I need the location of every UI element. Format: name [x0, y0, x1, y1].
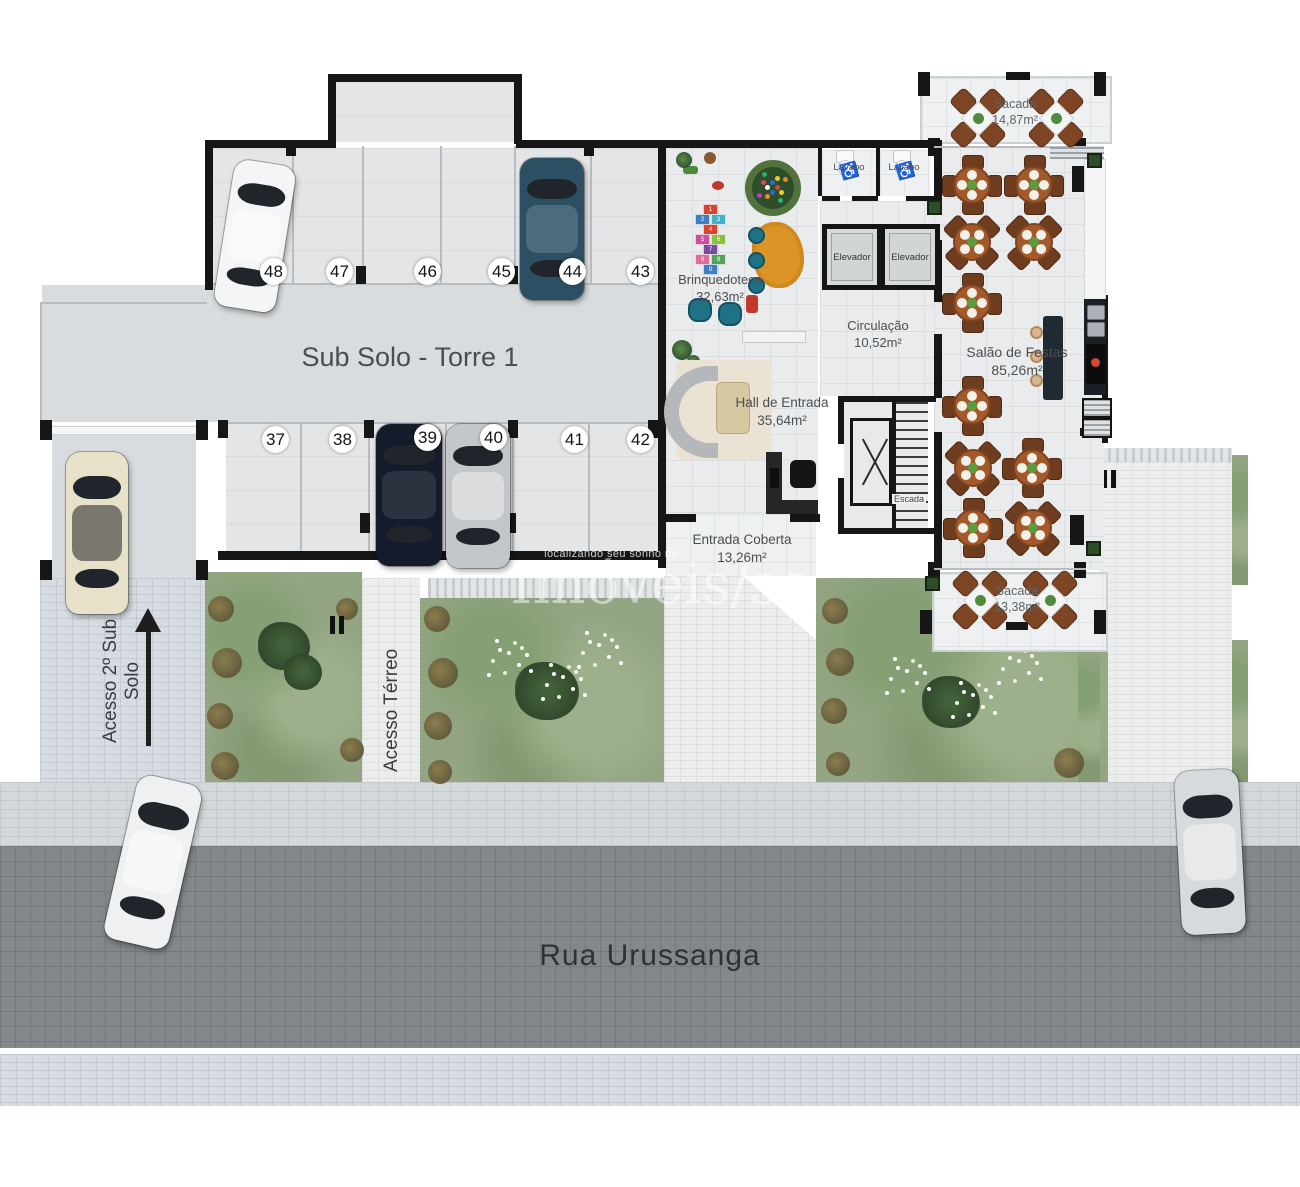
- ball: [770, 180, 775, 185]
- green-strip-3: [1232, 455, 1248, 585]
- room-label-circulacao: Circulação 10,52m²: [830, 318, 926, 352]
- elevator-1: Elevador: [822, 224, 882, 290]
- ball: [775, 176, 780, 181]
- parking-number: 42: [627, 426, 654, 453]
- pillar: [360, 513, 370, 533]
- stair-shaft: [850, 418, 892, 506]
- plate: [978, 523, 988, 533]
- pillar: [364, 420, 374, 438]
- pouf: [748, 227, 765, 244]
- ramp-gate-beam: [50, 426, 200, 435]
- car: [1174, 768, 1246, 935]
- watermark-brand: Imóveis/sc: [500, 552, 820, 617]
- flower-cluster: [588, 640, 592, 644]
- flower-cluster: [1008, 656, 1012, 660]
- wall: [514, 74, 522, 144]
- parking-number: 39: [414, 424, 441, 451]
- ramp-arrow-shaft: [146, 630, 151, 746]
- parking-number-text: 41: [565, 430, 584, 450]
- spot-divider: [514, 146, 516, 283]
- windshield: [73, 476, 121, 499]
- green-strip-4: [1232, 640, 1248, 782]
- ball: [770, 190, 775, 195]
- parking-number-text: 46: [418, 262, 437, 282]
- shrub: [1054, 748, 1084, 778]
- parking-number-text: 48: [264, 262, 283, 282]
- table-top: [953, 166, 991, 204]
- centerpiece: [968, 523, 978, 533]
- shrub: [207, 703, 233, 729]
- planter-box: [1086, 541, 1101, 556]
- parking-number: 48: [260, 258, 287, 285]
- shrub: [821, 698, 847, 724]
- shrub: [212, 648, 242, 678]
- plate: [967, 288, 977, 298]
- parking-number-text: 37: [266, 430, 285, 450]
- room-name: Sacada: [962, 96, 1068, 112]
- elevator-2: Elevador: [880, 224, 940, 290]
- parking-number-text: 43: [631, 262, 650, 282]
- grill-unit: [1082, 418, 1112, 438]
- parking-number: 43: [627, 258, 654, 285]
- stair-treads: [896, 402, 928, 526]
- wall: [658, 140, 666, 568]
- table-top: [1013, 449, 1051, 487]
- wall: [852, 196, 878, 201]
- shrub: [211, 752, 239, 780]
- sideboard: [742, 331, 806, 343]
- room-area: 35,64m²: [722, 412, 842, 430]
- shrub: [428, 658, 458, 688]
- room-label-escada: Escada: [886, 494, 932, 506]
- room-label-salao: Salão de Festas 85,26m²: [952, 343, 1082, 379]
- table-top: [954, 509, 992, 547]
- flower-cluster: [896, 666, 900, 670]
- pillar: [1072, 166, 1084, 192]
- sink: [1087, 322, 1105, 337]
- driveway-right-threshold: [1100, 448, 1232, 462]
- planter-box: [1087, 153, 1102, 168]
- spot-divider: [590, 146, 592, 283]
- rear-window: [118, 893, 168, 923]
- pillar: [356, 266, 366, 284]
- car-roof: [120, 828, 186, 896]
- room-name: Sacada: [964, 583, 1070, 599]
- wall: [205, 140, 213, 290]
- garden-gate-marker: [330, 616, 344, 634]
- spot-divider: [588, 424, 590, 551]
- watermark-brand-text: Imóveis/sc: [510, 552, 809, 617]
- floor-plan: Elevador Elevador ♿ ♿ 1234567890: [0, 0, 1300, 1187]
- pillar: [1094, 610, 1106, 634]
- wall: [892, 400, 896, 528]
- room-label-sacada-norte: Sacada 14,87m²: [962, 96, 1068, 129]
- parking-number: 46: [414, 258, 441, 285]
- room-area: 14,87m²: [962, 112, 1068, 128]
- rear-window: [386, 526, 432, 543]
- garage-bump-floor: [336, 82, 514, 142]
- room-name: Hall de Entrada: [722, 394, 842, 412]
- car-roof: [226, 207, 284, 265]
- parking-number-text: 42: [631, 430, 650, 450]
- plate: [967, 411, 977, 421]
- spot-divider: [300, 424, 302, 551]
- windshield: [1182, 793, 1233, 819]
- plate: [957, 180, 967, 190]
- rear-window: [1190, 887, 1236, 909]
- ramp-arrow-head: [135, 608, 161, 632]
- wall: [660, 514, 696, 522]
- parking-number-text: 47: [330, 262, 349, 282]
- centerpiece: [967, 298, 977, 308]
- plate: [1039, 180, 1049, 190]
- plate: [968, 533, 978, 543]
- plate: [977, 180, 987, 190]
- elevator-label: Elevador: [891, 252, 929, 263]
- parking-number-text: 40: [484, 428, 503, 448]
- room-area: 32,63m²: [655, 289, 785, 306]
- shrub: [424, 606, 450, 632]
- cooktop: [1086, 344, 1106, 384]
- pillar: [218, 420, 228, 438]
- wall: [205, 140, 336, 148]
- ball: [762, 172, 767, 177]
- centerpiece: [1029, 180, 1039, 190]
- parking-number: 47: [326, 258, 353, 285]
- toy: [712, 181, 724, 190]
- wall: [328, 74, 522, 82]
- ball: [765, 194, 770, 199]
- garage-title-text: Sub Solo - Torre 1: [301, 342, 518, 372]
- car-roof: [452, 472, 504, 521]
- shrub: [826, 752, 850, 776]
- wall: [838, 528, 936, 534]
- car-roof: [526, 205, 578, 253]
- elevator-label: Elevador: [833, 252, 871, 263]
- parking-number: 41: [561, 426, 588, 453]
- room-name: Lavabo: [888, 162, 919, 173]
- dining-table: [943, 274, 1001, 332]
- pillar: [584, 140, 594, 156]
- kitchen-counter-col: [1084, 159, 1106, 301]
- pillar: [920, 610, 932, 634]
- room-label-brinquedoteca: Brinquedoteca 32,63m²: [655, 272, 785, 306]
- pouf: [748, 252, 765, 269]
- shrub: [208, 596, 234, 622]
- ball: [779, 190, 784, 195]
- plate: [977, 401, 987, 411]
- room-area: 85,26m²: [952, 361, 1082, 379]
- room-name: Lavabo: [833, 162, 864, 173]
- plate: [1019, 180, 1029, 190]
- car: [66, 452, 128, 614]
- rear-window: [75, 569, 118, 588]
- spot-divider: [292, 146, 294, 283]
- plate: [967, 170, 977, 180]
- plate: [968, 513, 978, 523]
- table-top: [953, 387, 991, 425]
- ball: [783, 177, 788, 182]
- plate: [1017, 463, 1027, 473]
- table-top: [953, 284, 991, 322]
- centerpiece: [967, 180, 977, 190]
- ball: [775, 185, 780, 190]
- centerpiece: [1027, 463, 1037, 473]
- access-terreo-label: Acesso Térreo: [381, 638, 403, 782]
- wall: [822, 196, 840, 201]
- wall: [790, 514, 820, 522]
- flower-cluster: [498, 648, 502, 652]
- plate: [977, 298, 987, 308]
- flower-cluster: [552, 672, 556, 676]
- plate: [967, 190, 977, 200]
- pillar: [1006, 72, 1030, 80]
- lot-edge: [40, 302, 207, 304]
- parking-number: 44: [559, 258, 586, 285]
- sink: [1087, 305, 1105, 320]
- plate: [1037, 463, 1047, 473]
- shrub: [340, 738, 364, 762]
- car-roof: [1182, 823, 1237, 881]
- plate: [957, 298, 967, 308]
- toy: [704, 152, 716, 164]
- room-label-lavabo-2: Lavabo: [878, 162, 930, 174]
- planter-box: [925, 576, 940, 591]
- lot-edge: [40, 302, 42, 424]
- monitor: [770, 468, 779, 488]
- ball: [778, 198, 783, 203]
- palm-plant: [284, 654, 322, 690]
- wall: [328, 74, 336, 144]
- plate: [1027, 473, 1037, 483]
- wall: [934, 432, 942, 568]
- shrub: [822, 598, 848, 624]
- room-label-sacada-sul: Sacada 13,38m²: [964, 583, 1070, 616]
- room-label-lavabo-1: Lavabo: [822, 162, 876, 174]
- palm-plant: [922, 676, 980, 728]
- shrub: [826, 648, 854, 676]
- wall: [838, 478, 844, 534]
- plate: [1029, 170, 1039, 180]
- bar-stool: [1030, 326, 1043, 339]
- ball: [765, 185, 770, 190]
- palm-plant: [515, 662, 579, 720]
- windshield: [236, 181, 287, 209]
- room-name: Brinquedoteca: [655, 272, 785, 289]
- parking-number-text: 45: [492, 262, 511, 282]
- spot-divider: [440, 146, 442, 283]
- car-roof: [382, 471, 436, 519]
- room-name: Escada: [892, 494, 926, 504]
- pillar: [286, 140, 296, 156]
- room-name: Circulação: [830, 318, 926, 335]
- parking-number-text: 38: [333, 430, 352, 450]
- pillar: [40, 560, 52, 580]
- ball-pit: [745, 160, 801, 216]
- centerpiece: [967, 401, 977, 411]
- wall: [934, 334, 942, 398]
- side-gate-marker: [1102, 470, 1116, 488]
- office-chair: [790, 460, 816, 488]
- table-top: [1015, 166, 1053, 204]
- reception-desk: [766, 500, 818, 514]
- room-area: 10,52m²: [830, 335, 926, 352]
- parking-number: 45: [488, 258, 515, 285]
- street-name-text: Rua Urussanga: [539, 939, 760, 972]
- grill-unit: [1082, 398, 1112, 418]
- pillar: [40, 420, 52, 440]
- garage-bottom-spots-floor: [226, 422, 658, 553]
- parking-number: 37: [262, 426, 289, 453]
- access-label-text: Acesso Térreo: [381, 648, 402, 771]
- plate: [967, 308, 977, 318]
- hopscotch-mat: 1234567890: [694, 204, 726, 274]
- potted-plant: [676, 152, 692, 168]
- room-label-hall: Hall de Entrada 35,64m²: [722, 394, 842, 429]
- plate: [957, 401, 967, 411]
- driveway-right: [1100, 462, 1232, 782]
- street-name: Rua Urussanga: [440, 936, 860, 975]
- shrub: [428, 760, 452, 784]
- pillar: [196, 560, 208, 580]
- access-label-text: Acesso 2º Sub Solo: [100, 619, 143, 743]
- plate: [1029, 190, 1039, 200]
- planter-box: [927, 200, 942, 215]
- rear-window: [456, 528, 501, 545]
- pillar: [918, 72, 930, 96]
- ball: [757, 193, 762, 198]
- flower-cluster: [962, 690, 966, 694]
- spot-divider: [362, 146, 364, 283]
- car-roof: [72, 505, 123, 560]
- room-name: Entrada Coberta: [672, 531, 812, 549]
- plate: [967, 391, 977, 401]
- plate: [1027, 453, 1037, 463]
- shrub: [424, 712, 452, 740]
- room-area: 13,38m²: [964, 599, 1070, 615]
- plate: [958, 523, 968, 533]
- windshield: [136, 799, 191, 833]
- wall: [660, 140, 940, 148]
- far-sidewalk: [0, 1054, 1300, 1106]
- parking-number-text: 39: [418, 428, 437, 448]
- parking-number-text: 44: [563, 262, 582, 282]
- pillar: [1070, 515, 1084, 545]
- parking-number: 40: [480, 424, 507, 451]
- windshield: [527, 179, 577, 199]
- pillar: [1094, 72, 1106, 96]
- pillar: [196, 420, 208, 440]
- aisle-edge: [218, 422, 658, 424]
- room-name: Salão de Festas: [952, 343, 1082, 361]
- garage-title: Sub Solo - Torre 1: [300, 340, 520, 375]
- parking-number: 38: [329, 426, 356, 453]
